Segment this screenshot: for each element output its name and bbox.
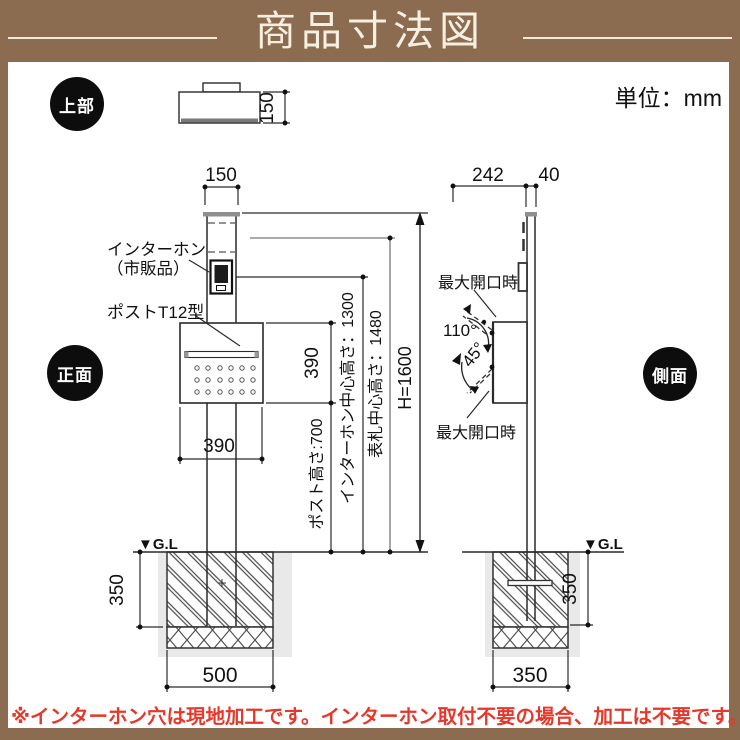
badge-top-view: 上部 bbox=[50, 77, 104, 131]
ground-level-side-label: ▼G.L bbox=[583, 536, 623, 553]
ground-level-front-label: ▼G.L bbox=[138, 536, 178, 553]
max-open-bottom-label: 最大開口時 bbox=[436, 419, 516, 443]
unit-label: 単位：mm bbox=[592, 79, 722, 113]
drawing-area bbox=[8, 62, 729, 728]
post-model-label: ポストT12型 bbox=[107, 298, 204, 323]
intercom-label: インターホン （市販品） bbox=[107, 241, 206, 279]
footnote: ※インターホン穴は現地加工です。インターホン取付不要の場合、加工は不要です。 bbox=[11, 700, 740, 729]
intercom-label-line1: インターホン bbox=[107, 241, 206, 260]
badge-side-view: 側面 bbox=[643, 347, 697, 401]
page-title: 商品寸法図 bbox=[0, 1, 740, 61]
badge-front-view: 正面 bbox=[47, 345, 103, 401]
max-open-top-label: 最大開口時 bbox=[438, 269, 518, 293]
header-bar: 商品寸法図 bbox=[0, 0, 740, 62]
page: 商品寸法図 bbox=[0, 0, 740, 740]
intercom-label-line2: （市販品） bbox=[107, 260, 206, 279]
